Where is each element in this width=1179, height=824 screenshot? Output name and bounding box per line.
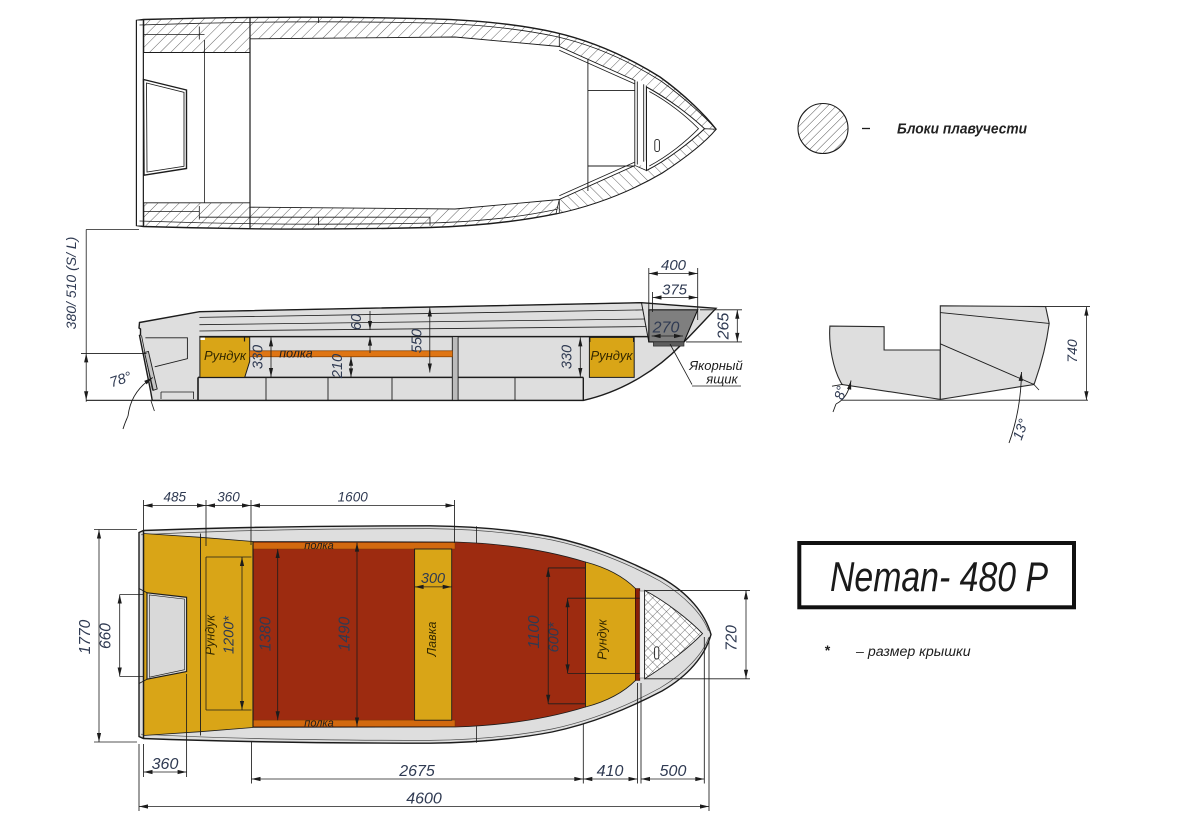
svg-text:360: 360 xyxy=(217,490,240,505)
svg-text:410: 410 xyxy=(597,763,624,780)
svg-text:1200*: 1200* xyxy=(222,615,238,654)
svg-text:1100: 1100 xyxy=(526,615,543,649)
svg-text:400: 400 xyxy=(661,257,687,274)
svg-text:265: 265 xyxy=(716,313,733,341)
svg-text:210: 210 xyxy=(330,354,346,379)
svg-text:550: 550 xyxy=(410,329,426,353)
svg-text:Neman- 480 P: Neman- 480 P xyxy=(830,553,1048,600)
svg-text:330: 330 xyxy=(560,345,576,369)
svg-text:60: 60 xyxy=(349,314,365,330)
svg-text:Рундук: Рундук xyxy=(596,618,610,659)
svg-text:500: 500 xyxy=(660,763,687,780)
svg-text:1770: 1770 xyxy=(77,619,94,654)
svg-text:ящик: ящик xyxy=(705,372,738,387)
svg-text:270: 270 xyxy=(652,320,680,337)
svg-text:*: * xyxy=(824,642,830,658)
svg-text:– размер крышки: – размер крышки xyxy=(855,644,971,660)
svg-text:Рундук: Рундук xyxy=(204,614,218,655)
svg-text:380/ 510 (S/ L): 380/ 510 (S/ L) xyxy=(63,237,79,330)
svg-text:4600: 4600 xyxy=(406,791,442,808)
svg-text:1490: 1490 xyxy=(337,616,354,651)
svg-text:Блоки плавучести: Блоки плавучести xyxy=(897,121,1027,138)
svg-text:740: 740 xyxy=(1064,339,1080,363)
svg-text:1600: 1600 xyxy=(338,490,369,505)
svg-text:полка: полка xyxy=(279,347,313,361)
svg-text:2675: 2675 xyxy=(398,763,435,780)
svg-text:300: 300 xyxy=(421,571,445,587)
svg-text:Рундук: Рундук xyxy=(590,348,633,363)
svg-text:375: 375 xyxy=(662,282,688,299)
svg-text:360: 360 xyxy=(152,756,179,773)
svg-text:1380: 1380 xyxy=(258,616,275,651)
svg-text:485: 485 xyxy=(164,490,187,505)
svg-text:600*: 600* xyxy=(547,621,563,652)
svg-text:Лавка: Лавка xyxy=(425,622,439,658)
svg-text:Рундук: Рундук xyxy=(204,348,247,363)
svg-text:330: 330 xyxy=(251,345,267,369)
svg-text:660: 660 xyxy=(98,623,115,649)
svg-text:720: 720 xyxy=(724,625,741,651)
